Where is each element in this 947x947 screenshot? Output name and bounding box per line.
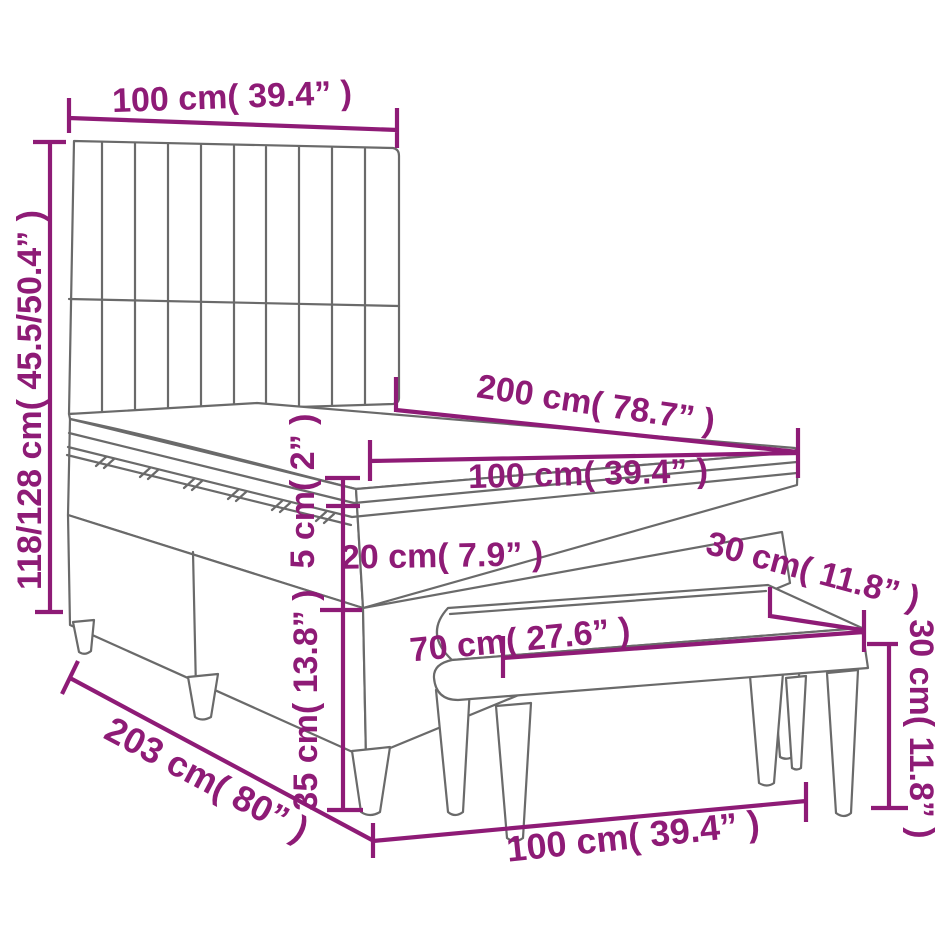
label-overall-height: 118/128 cm( 45.5/50.4” ) — [11, 210, 49, 590]
label-bed-width: 100 cm( 39.4” ) — [504, 802, 761, 869]
label-total-length: 203 cm( 80” ) — [98, 708, 315, 849]
label-bench-height: 30 cm( 11.8” ) — [902, 619, 940, 838]
label-headboard-width: 100 cm( 39.4” ) — [111, 74, 352, 120]
label-topper-thickness: 5 cm( 2” ) — [284, 414, 322, 569]
label-base-height: 35 cm( 13.8” ) — [287, 589, 325, 810]
dim-line-bench-height — [867, 644, 908, 808]
dimension-diagram: 100 cm( 39.4” ) 118/128 cm( 45.5/50.4” )… — [0, 0, 947, 947]
label-mattress-width: 100 cm( 39.4” ) — [468, 452, 709, 496]
headboard — [69, 141, 399, 414]
diagram-svg: 100 cm( 39.4” ) 118/128 cm( 45.5/50.4” )… — [0, 0, 947, 947]
label-mattress-thickness: 20 cm( 7.9” ) — [341, 535, 544, 577]
